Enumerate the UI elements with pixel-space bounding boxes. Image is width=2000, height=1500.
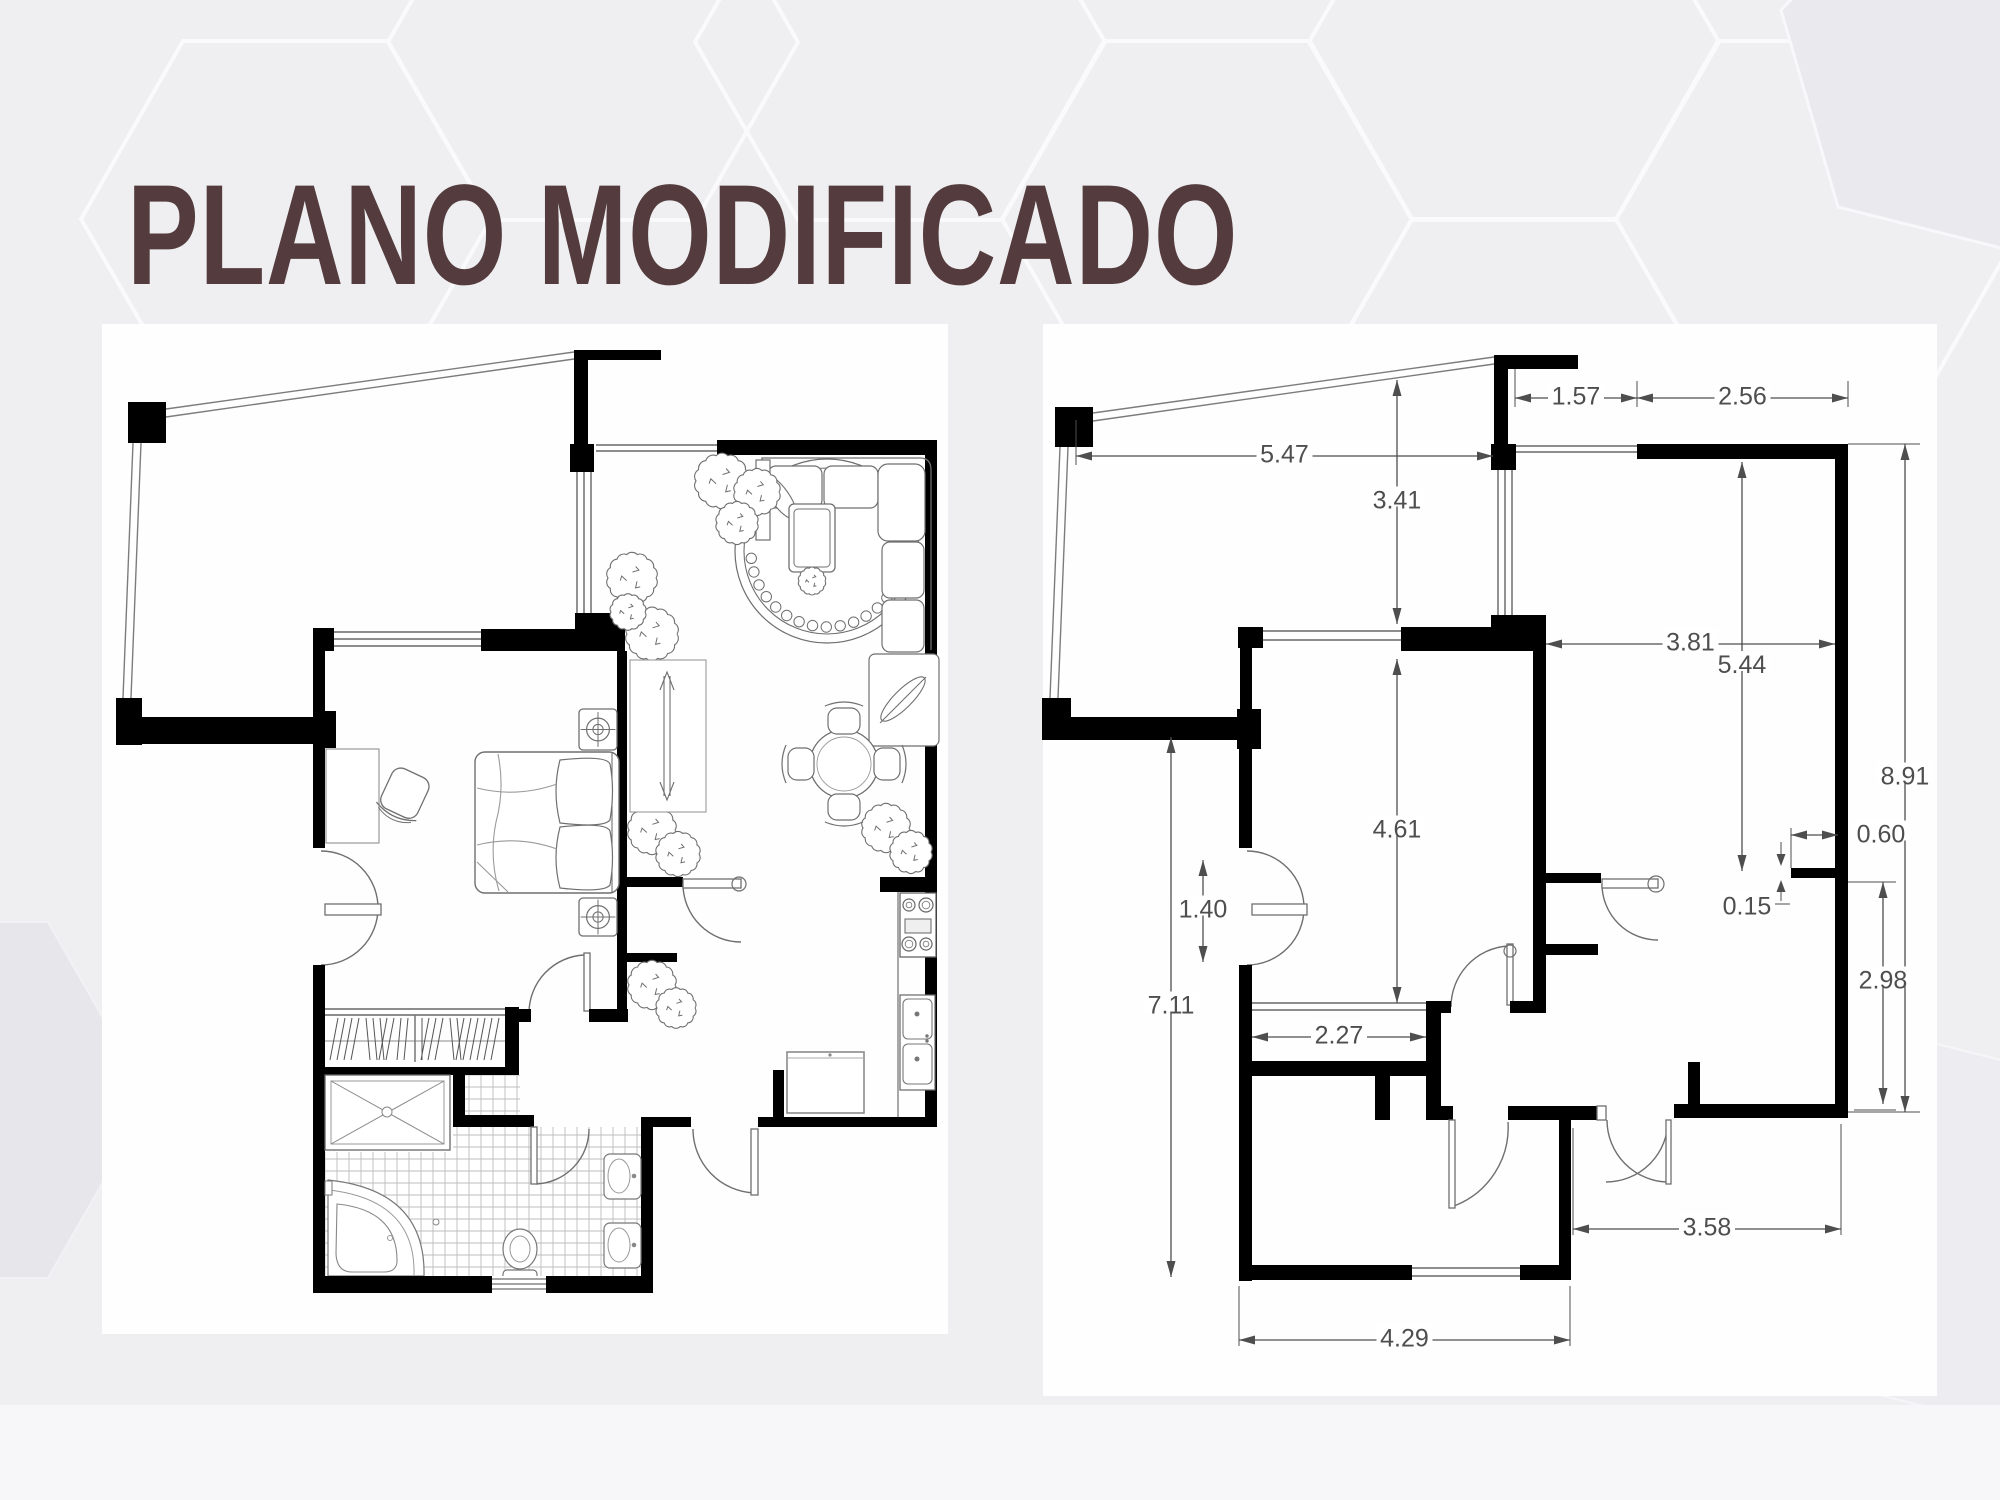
svg-text:2.98: 2.98 [1859,967,1908,995]
svg-text:5.47: 5.47 [1260,441,1309,469]
svg-text:1.57: 1.57 [1552,383,1601,411]
svg-text:1.40: 1.40 [1179,896,1228,924]
svg-text:3.41: 3.41 [1373,487,1422,515]
svg-text:2.27: 2.27 [1315,1022,1364,1050]
svg-text:3.58: 3.58 [1683,1214,1732,1242]
svg-text:3.81: 3.81 [1666,629,1715,657]
svg-text:2.56: 2.56 [1718,383,1767,411]
svg-text:4.29: 4.29 [1380,1325,1429,1353]
svg-text:8.91: 8.91 [1881,763,1930,791]
svg-text:5.44: 5.44 [1718,651,1767,679]
svg-text:4.61: 4.61 [1373,816,1422,844]
svg-text:0.60: 0.60 [1857,821,1906,849]
svg-text:0.15: 0.15 [1723,893,1772,921]
svg-text:7.11: 7.11 [1148,992,1195,1020]
